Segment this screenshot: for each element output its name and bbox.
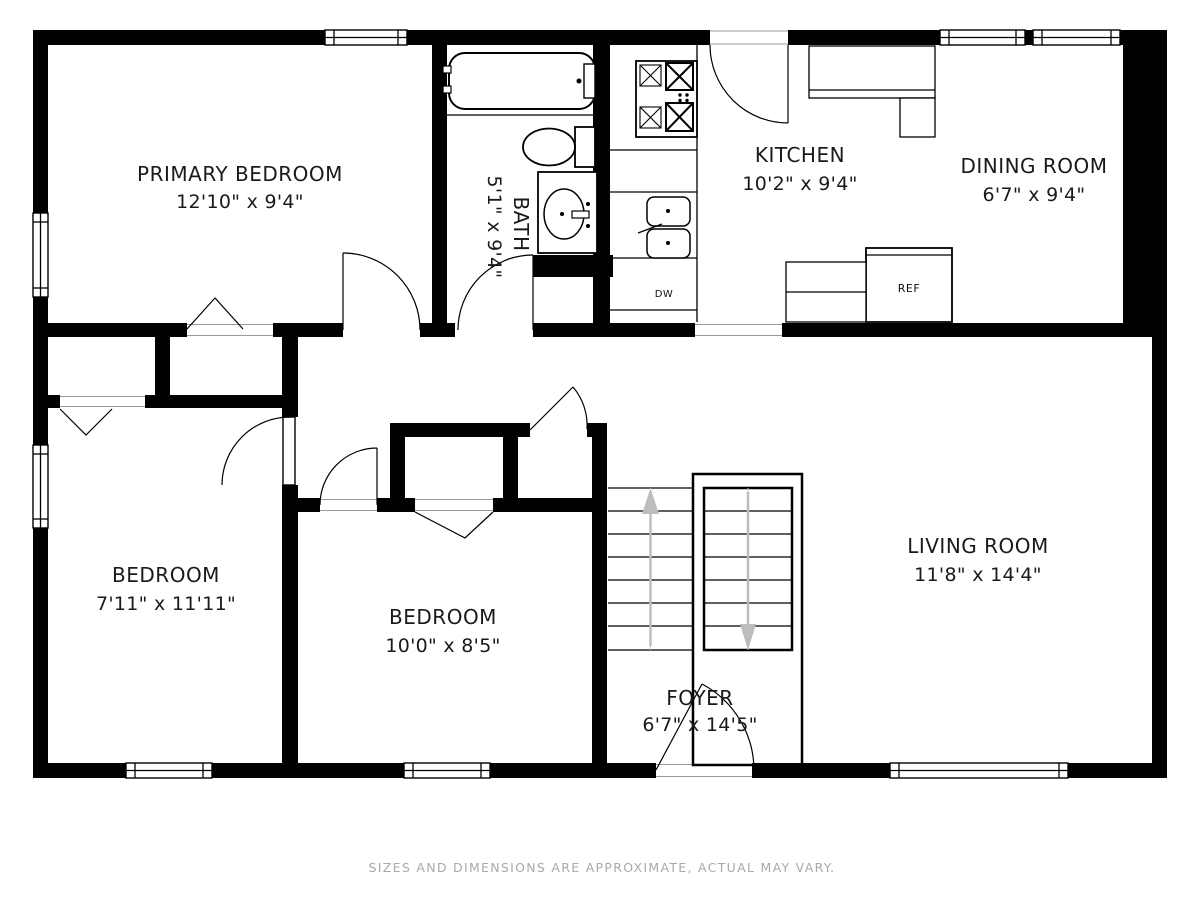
living-room-dims: 11'8" x 14'4" (914, 564, 1042, 586)
foyer-dims: 6'7" x 14'5" (642, 714, 757, 736)
floor-plan-page: DW REF PRIMARY BEDROOM 12'10" x 9'4" BAT… (0, 0, 1200, 900)
room-label-bedroom-left: BEDROOM 7'11" x 11'11" (96, 563, 236, 615)
window-dining-top-2 (1033, 30, 1120, 45)
window-bedroom-left-left (33, 445, 48, 528)
kitchen-dims: 10'2" x 9'4" (742, 173, 857, 195)
refrigerator: REF (866, 248, 952, 322)
door-hall-closet (530, 387, 587, 430)
stove (636, 61, 697, 137)
foyer-name: FOYER (666, 686, 733, 710)
window-primary-left (33, 213, 48, 297)
bath-dims: 5'1" x 9'4" (483, 176, 505, 279)
bifold-bedroom-left-closet (60, 397, 145, 436)
refrigerator-label: REF (898, 282, 920, 295)
stairs-up-arrow-icon (642, 488, 659, 646)
kitchen-sink (638, 197, 690, 258)
floor-plan-svg: DW REF PRIMARY BEDROOM 12'10" x 9'4" BAT… (0, 0, 1200, 900)
window-primary-top (325, 30, 407, 45)
kitchen-name: KITCHEN (755, 143, 845, 167)
window-living-bottom (890, 763, 1068, 778)
bedroom-left-name: BEDROOM (112, 563, 220, 587)
dining-room-dims: 6'7" x 9'4" (983, 184, 1086, 206)
bifold-primary-closet (187, 298, 273, 336)
room-label-primary-bedroom: PRIMARY BEDROOM 12'10" x 9'4" (137, 162, 343, 213)
bifold-bedroom-middle-closet (415, 500, 493, 539)
room-label-bedroom-middle: BEDROOM 10'0" x 8'5" (385, 605, 500, 657)
room-label-foyer: FOYER 6'7" x 14'5" (642, 686, 757, 736)
dining-room-name: DINING ROOM (960, 154, 1107, 178)
primary-bedroom-dims: 12'10" x 9'4" (176, 191, 304, 213)
room-label-bath: BATH 5'1" x 9'4" (483, 176, 533, 279)
bathtub (443, 53, 595, 115)
bath-vanity-sink (538, 172, 597, 253)
room-label-living-room: LIVING ROOM 11'8" x 14'4" (907, 534, 1049, 586)
window-bedroom-left-bottom (126, 763, 212, 778)
bedroom-middle-dims: 10'0" x 8'5" (385, 635, 500, 657)
bath-name: BATH (509, 196, 533, 251)
bedroom-middle-name: BEDROOM (389, 605, 497, 629)
primary-bedroom-name: PRIMARY BEDROOM (137, 162, 343, 186)
door-bedroom-middle (320, 448, 377, 511)
door-bedroom-left (222, 417, 295, 485)
kitchen-counter-top (809, 46, 935, 137)
toilet (523, 127, 595, 167)
kitchen-counter-bottom (786, 262, 866, 322)
living-room-name: LIVING ROOM (907, 534, 1049, 558)
window-bedroom-middle-bottom (404, 763, 490, 778)
stairs-down-arrow-icon (740, 492, 756, 650)
walls (33, 30, 1167, 778)
bedroom-left-dims: 7'11" x 11'11" (96, 593, 236, 615)
disclaimer-text: SIZES AND DIMENSIONS ARE APPROXIMATE, AC… (369, 860, 836, 875)
door-kitchen-back (710, 31, 788, 123)
room-label-kitchen: KITCHEN 10'2" x 9'4" (742, 143, 857, 195)
window-dining-top-1 (940, 30, 1025, 45)
door-primary-bedroom (343, 253, 420, 330)
dishwasher-label: DW (655, 289, 674, 300)
room-label-dining-room: DINING ROOM 6'7" x 9'4" (960, 154, 1107, 206)
stairwell-opening-lines (695, 325, 782, 336)
